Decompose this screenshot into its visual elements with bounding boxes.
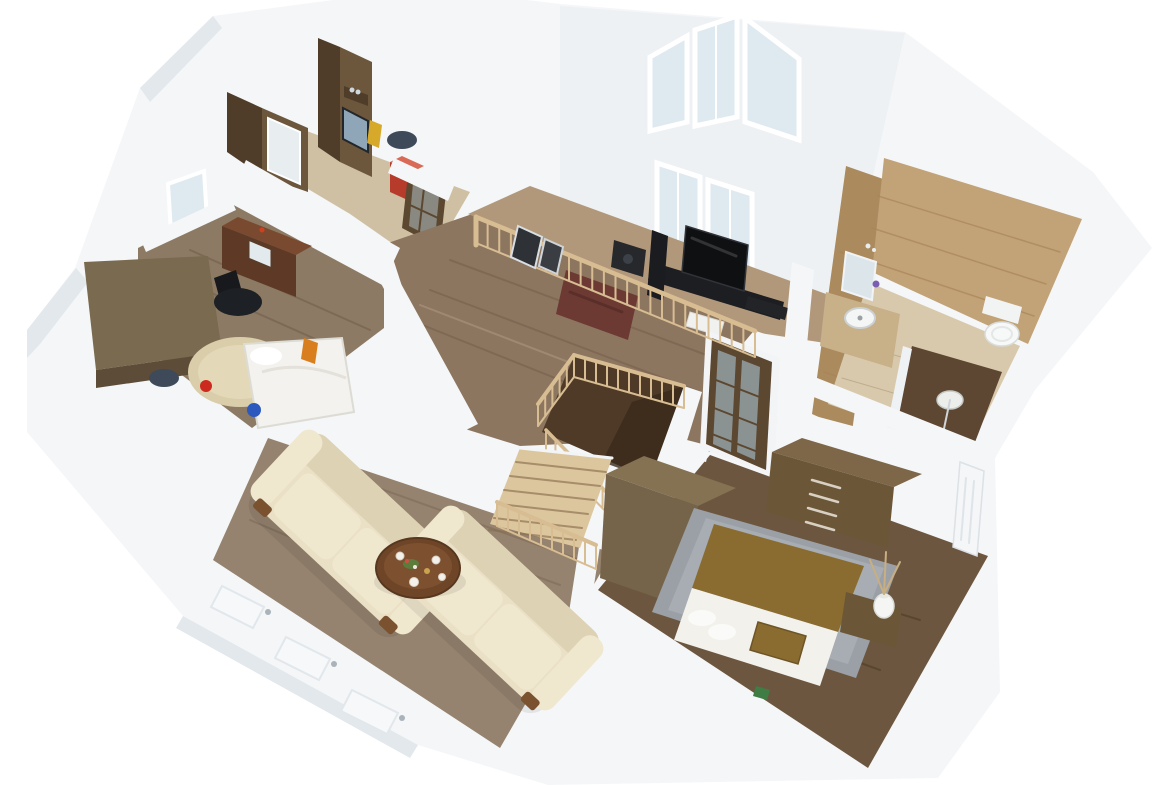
tall-cabinet-side (318, 38, 340, 162)
decor-purple (873, 281, 880, 288)
bed-pillow (708, 624, 736, 640)
bed-pillow (688, 610, 716, 626)
flower-red (405, 559, 409, 563)
toy-red-ball (200, 380, 212, 392)
office-chair-seat (214, 288, 262, 316)
flower-white (413, 565, 417, 569)
table-cup (396, 552, 404, 560)
toy-blue (247, 403, 261, 417)
radiator-valve (331, 661, 337, 667)
decor-bottle (872, 248, 876, 252)
floorplan-svg (0, 0, 1170, 785)
bottle-2 (356, 90, 361, 95)
table-cup (410, 578, 419, 587)
table-candle (424, 568, 430, 574)
subwoofer-cone (623, 254, 633, 264)
navy-stool (149, 369, 179, 387)
toilet-bowl (985, 322, 1019, 346)
decor-bottle (866, 244, 871, 249)
radiator-valve (399, 715, 405, 721)
table-cup (439, 574, 446, 581)
table-cup (432, 556, 440, 564)
floorplan-render (0, 0, 1170, 785)
sink-drain (858, 316, 863, 321)
bottle-1 (350, 88, 355, 93)
desk-deco (260, 228, 265, 233)
navy-side-table (387, 131, 417, 149)
office-bed-pillow (250, 347, 282, 365)
radiator-valve (265, 609, 271, 615)
